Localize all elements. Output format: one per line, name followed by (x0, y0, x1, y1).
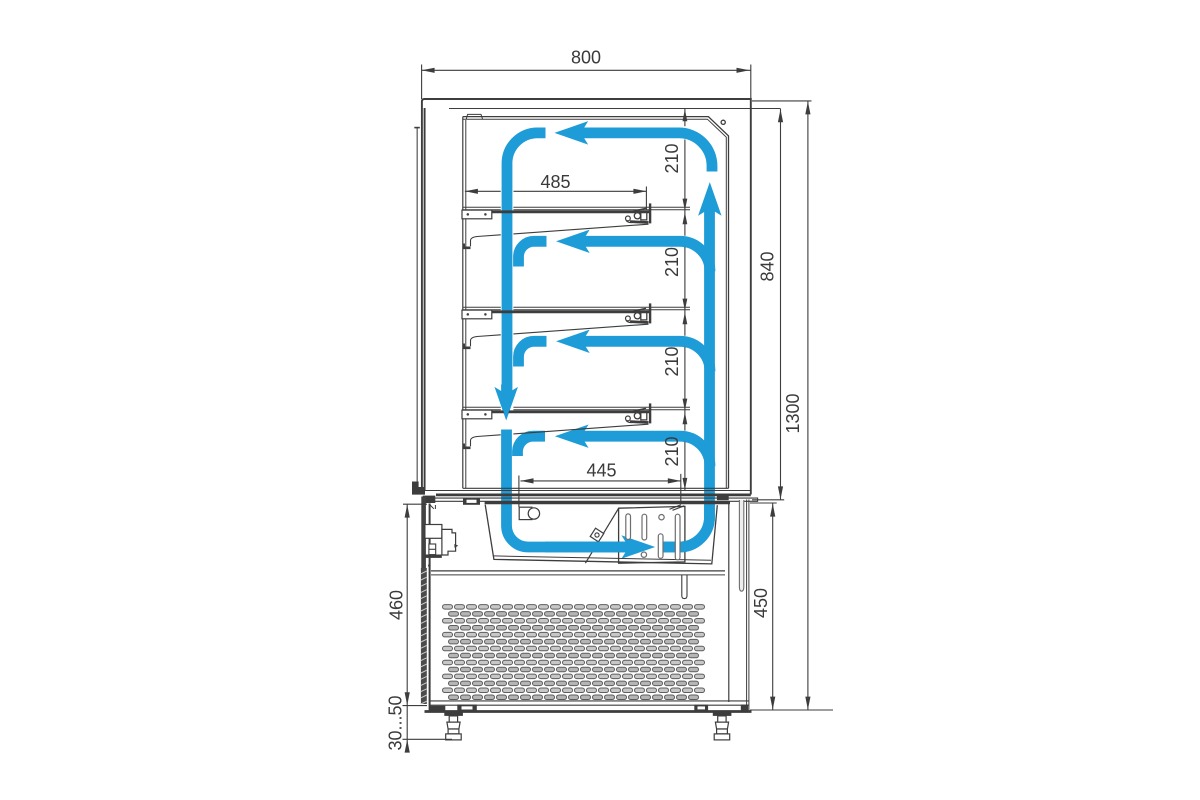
svg-text:445: 445 (586, 461, 616, 481)
svg-text:1300: 1300 (783, 393, 803, 433)
svg-text:210: 210 (662, 143, 682, 173)
svg-text:840: 840 (758, 251, 778, 281)
svg-text:450: 450 (751, 588, 771, 618)
svg-text:485: 485 (540, 172, 570, 192)
svg-text:210: 210 (662, 436, 682, 466)
svg-text:30...50: 30...50 (386, 695, 406, 750)
svg-text:800: 800 (571, 48, 601, 68)
svg-text:210: 210 (662, 247, 682, 277)
svg-text:460: 460 (387, 590, 407, 620)
svg-text:210: 210 (662, 346, 682, 376)
